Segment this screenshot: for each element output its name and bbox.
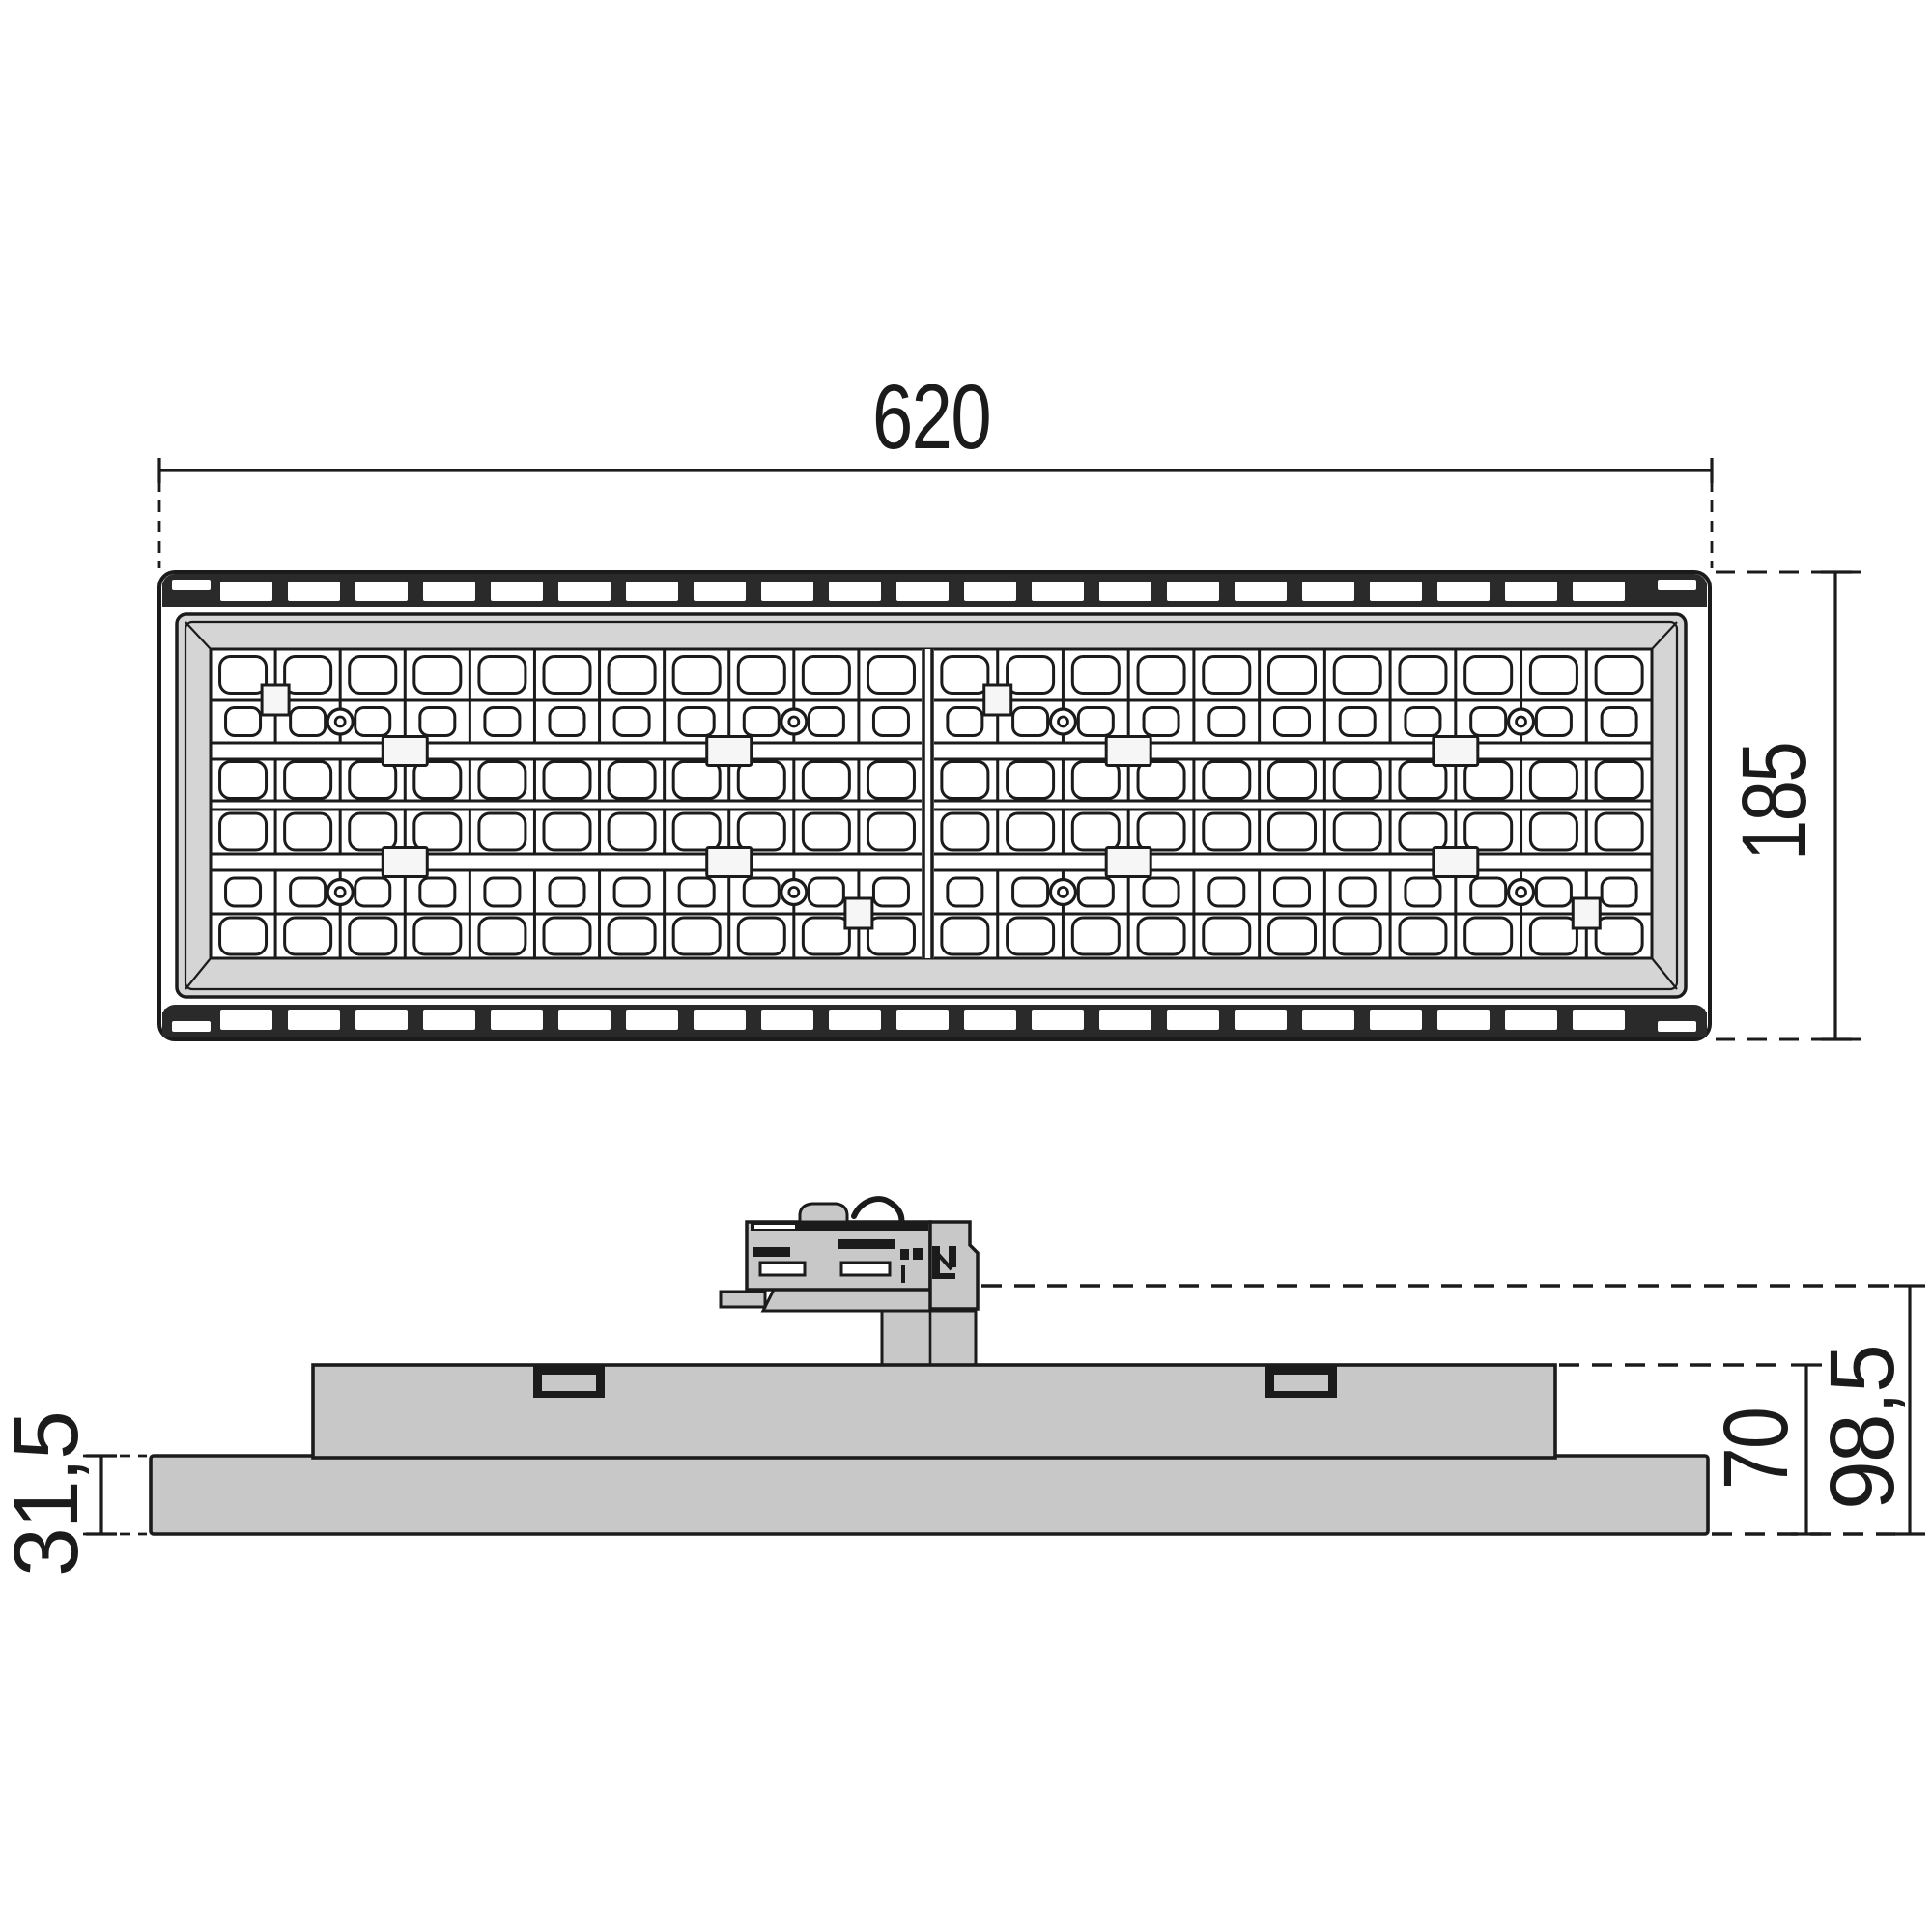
led-lens	[355, 708, 390, 736]
led-lens	[809, 878, 843, 906]
fin-slot	[626, 1010, 678, 1030]
led-lens	[942, 657, 988, 694]
led-lens	[220, 762, 267, 799]
mount-square-big	[1434, 848, 1478, 877]
mount-square-big	[383, 737, 427, 766]
luminaire-body	[151, 1365, 1708, 1534]
led-lens	[355, 878, 390, 906]
fin-slot	[423, 582, 475, 601]
led-lens	[609, 918, 655, 954]
led-lens	[485, 878, 520, 906]
led-lens	[609, 762, 655, 799]
led-lens	[614, 708, 649, 736]
adapter-nub	[721, 1292, 765, 1307]
fin-slot	[1167, 582, 1219, 601]
led-lens	[867, 657, 914, 694]
screw-inner	[789, 888, 799, 897]
dim-height-label: 185	[1723, 743, 1826, 861]
fin-slot	[1032, 1010, 1084, 1030]
latch-detail	[949, 1246, 956, 1267]
led-lens	[485, 708, 520, 736]
led-lens	[420, 708, 455, 736]
led-lens	[679, 878, 714, 906]
fin-slot	[964, 582, 1016, 601]
fin-slot	[1302, 582, 1354, 601]
dim-head-height-label: 31,5	[0, 1412, 98, 1577]
led-lens	[1269, 918, 1316, 954]
led-lens	[1530, 657, 1577, 694]
led-lens	[1465, 813, 1512, 850]
led-lens	[803, 657, 849, 694]
led-lens	[867, 813, 914, 850]
fin-slot	[491, 582, 543, 601]
mount-square-big	[707, 737, 752, 766]
led-lens	[673, 657, 720, 694]
fin-slot	[829, 1010, 881, 1030]
mount-square-small	[1573, 898, 1600, 928]
led-lens	[673, 918, 720, 954]
mount-square-big	[707, 848, 752, 877]
led-lens	[1008, 762, 1054, 799]
led-lens	[1008, 918, 1054, 954]
fin-end-notch	[1658, 1021, 1696, 1032]
led-lens	[1400, 813, 1446, 850]
led-lens	[738, 762, 784, 799]
led-lens	[867, 918, 914, 954]
led-lens	[291, 708, 326, 736]
fin-slot	[1505, 582, 1557, 601]
led-lens	[1204, 657, 1250, 694]
mount-square-small	[262, 685, 289, 715]
fin-slot	[491, 1010, 543, 1030]
led-lens	[1204, 813, 1250, 850]
led-lens	[673, 813, 720, 850]
led-lens	[1471, 708, 1506, 736]
led-lens	[220, 657, 267, 694]
led-lens	[1072, 813, 1119, 850]
led-lens	[1144, 708, 1179, 736]
led-lens	[1334, 762, 1380, 799]
led-lens	[744, 878, 779, 906]
fin-slot	[220, 1010, 272, 1030]
led-lens	[1138, 918, 1184, 954]
led-lens	[1008, 813, 1054, 850]
led-lens	[544, 762, 590, 799]
adapter-header-slot	[754, 1225, 795, 1229]
led-lens	[948, 878, 982, 906]
led-lens	[1596, 918, 1642, 954]
clip-slot	[541, 1374, 597, 1392]
led-lens	[220, 813, 267, 850]
led-lens	[873, 708, 908, 736]
drawing-canvas: 620 185 31,5 70 98,5	[0, 0, 1932, 1932]
led-lens	[609, 657, 655, 694]
fin-slot	[829, 582, 881, 601]
led-lens	[1596, 657, 1642, 694]
fin-end-notch	[172, 1021, 211, 1032]
led-lens	[420, 878, 455, 906]
clip-slot	[1273, 1374, 1329, 1392]
fin-slot	[1437, 1010, 1490, 1030]
fin-slot	[761, 1010, 813, 1030]
fin-slot	[558, 1010, 611, 1030]
fin-slot	[1302, 1010, 1354, 1030]
led-lens	[1072, 918, 1119, 954]
mount-square-small	[845, 898, 872, 928]
led-lens	[942, 813, 988, 850]
led-lens	[1602, 708, 1636, 736]
led-lens	[942, 918, 988, 954]
led-lens	[285, 918, 331, 954]
led-lens	[414, 813, 461, 850]
led-lens	[1536, 878, 1571, 906]
led-lens	[948, 708, 982, 736]
led-lens	[1596, 813, 1642, 850]
led-lens	[1204, 762, 1250, 799]
fin-slot	[964, 1010, 1016, 1030]
led-lens	[1269, 657, 1316, 694]
led-lens	[285, 762, 331, 799]
fin-slot	[1505, 1010, 1557, 1030]
screw-inner	[789, 717, 799, 726]
fin-slot	[1235, 582, 1287, 601]
screw-inner	[1058, 717, 1067, 726]
mount-square-small	[984, 685, 1011, 715]
fin-slot	[288, 582, 340, 601]
led-lens	[1406, 708, 1440, 736]
fin-slot	[423, 1010, 475, 1030]
fin-end-notch	[1658, 580, 1696, 590]
led-lens	[1400, 918, 1446, 954]
led-lens	[803, 918, 849, 954]
adapter-top-bump	[800, 1204, 847, 1222]
led-lens	[679, 708, 714, 736]
led-lens	[803, 762, 849, 799]
led-lens	[1334, 918, 1380, 954]
driver-body	[313, 1365, 1555, 1458]
fin-slot	[896, 582, 949, 601]
led-lens	[803, 813, 849, 850]
led-lens	[479, 762, 526, 799]
fin-slot	[288, 1010, 340, 1030]
screw-inner	[1058, 888, 1067, 897]
led-lens	[942, 762, 988, 799]
led-lens	[1530, 813, 1577, 850]
led-lens	[1602, 878, 1636, 906]
led-lens	[1465, 762, 1512, 799]
led-lens	[350, 918, 396, 954]
led-lens	[1334, 657, 1380, 694]
fin-slot	[1099, 1010, 1151, 1030]
led-lens	[1144, 878, 1179, 906]
led-lens	[291, 878, 326, 906]
adapter-white-slot	[760, 1263, 805, 1275]
led-lens	[350, 813, 396, 850]
led-lens	[414, 657, 461, 694]
led-lens	[220, 918, 267, 954]
led-lens	[609, 813, 655, 850]
led-lens	[1008, 657, 1054, 694]
led-lens	[1406, 878, 1440, 906]
technical-drawing: 620 185 31,5 70 98,5	[0, 0, 1932, 1932]
led-lens	[285, 813, 331, 850]
mount-square-big	[1106, 737, 1151, 766]
led-lens	[1269, 813, 1316, 850]
fin-slot	[1235, 1010, 1287, 1030]
led-lens	[809, 708, 843, 736]
adapter-white-slot	[841, 1263, 890, 1275]
led-lens	[1138, 657, 1184, 694]
led-lens	[1013, 878, 1048, 906]
led-lens	[550, 878, 584, 906]
led-lens	[614, 878, 649, 906]
fin-slot	[1573, 582, 1625, 601]
adapter-pin	[901, 1265, 905, 1283]
fin-slot	[694, 582, 746, 601]
led-lens	[479, 813, 526, 850]
led-lens	[1138, 813, 1184, 850]
screw-inner	[335, 888, 345, 897]
led-lens	[544, 657, 590, 694]
led-lens	[479, 657, 526, 694]
led-lens	[226, 708, 261, 736]
led-lens	[738, 657, 784, 694]
led-lens	[738, 918, 784, 954]
led-lens	[226, 878, 261, 906]
led-lens	[738, 813, 784, 850]
fin-slot	[558, 582, 611, 601]
led-lens	[1209, 708, 1244, 736]
led-lens	[350, 762, 396, 799]
fin-slot	[626, 582, 678, 601]
led-lens	[1275, 878, 1310, 906]
led-lens	[1013, 708, 1048, 736]
fin-slot	[1370, 582, 1422, 601]
mount-square-big	[1106, 848, 1151, 877]
fin-slot	[694, 1010, 746, 1030]
led-lens	[414, 762, 461, 799]
light-head-slab	[151, 1456, 1708, 1534]
led-lens	[1400, 762, 1446, 799]
led-lens	[1465, 657, 1512, 694]
screw-inner	[335, 717, 345, 726]
led-lens	[1596, 762, 1642, 799]
fin-slot	[220, 582, 272, 601]
adapter-dark-slot	[753, 1247, 790, 1257]
led-lens	[1072, 762, 1119, 799]
led-lens	[1340, 878, 1375, 906]
fin-slot	[761, 582, 813, 601]
latch-detail	[932, 1273, 955, 1279]
led-lens	[1275, 708, 1310, 736]
led-lens	[1204, 918, 1250, 954]
led-lens	[350, 657, 396, 694]
led-lens	[1471, 878, 1506, 906]
led-lens	[285, 657, 331, 694]
led-lens	[1269, 762, 1316, 799]
led-lens	[873, 878, 908, 906]
adapter-contact	[913, 1248, 923, 1260]
fin-slot	[1370, 1010, 1422, 1030]
dim-total-height-label: 98,5	[1811, 1346, 1914, 1510]
led-lens	[673, 762, 720, 799]
fin-slot	[896, 1010, 949, 1030]
fin-slot	[1167, 1010, 1219, 1030]
led-lens	[1072, 657, 1119, 694]
screw-inner	[1517, 888, 1526, 897]
led-lens	[1530, 762, 1577, 799]
led-lens	[1536, 708, 1571, 736]
dim-body-height-label: 70	[1705, 1408, 1807, 1490]
led-lens	[1078, 708, 1113, 736]
mount-square-big	[383, 848, 427, 877]
led-lens	[544, 813, 590, 850]
fin-slot	[1032, 582, 1084, 601]
led-lens	[867, 762, 914, 799]
led-lens	[1138, 762, 1184, 799]
screw-inner	[1517, 717, 1526, 726]
dim-width-label: 620	[872, 366, 990, 469]
led-lens	[1530, 918, 1577, 954]
led-lens	[414, 918, 461, 954]
led-lens	[1334, 813, 1380, 850]
led-lens	[1340, 708, 1375, 736]
mount-square-big	[1434, 737, 1478, 766]
led-lens	[1078, 878, 1113, 906]
fin-end-notch	[172, 580, 211, 590]
fin-slot	[355, 1010, 408, 1030]
adapter-contact	[900, 1249, 909, 1260]
adapter-dark-slot	[838, 1239, 895, 1249]
led-lens	[1400, 657, 1446, 694]
fin-slot	[1437, 582, 1490, 601]
fin-slot	[1099, 582, 1151, 601]
led-lens	[744, 708, 779, 736]
led-lens	[544, 918, 590, 954]
fin-slot	[1573, 1010, 1625, 1030]
led-lens	[1209, 878, 1244, 906]
fin-slot	[355, 582, 408, 601]
led-lens	[550, 708, 584, 736]
led-lens	[479, 918, 526, 954]
top-view-projection	[159, 572, 1710, 1039]
led-lens	[1465, 918, 1512, 954]
